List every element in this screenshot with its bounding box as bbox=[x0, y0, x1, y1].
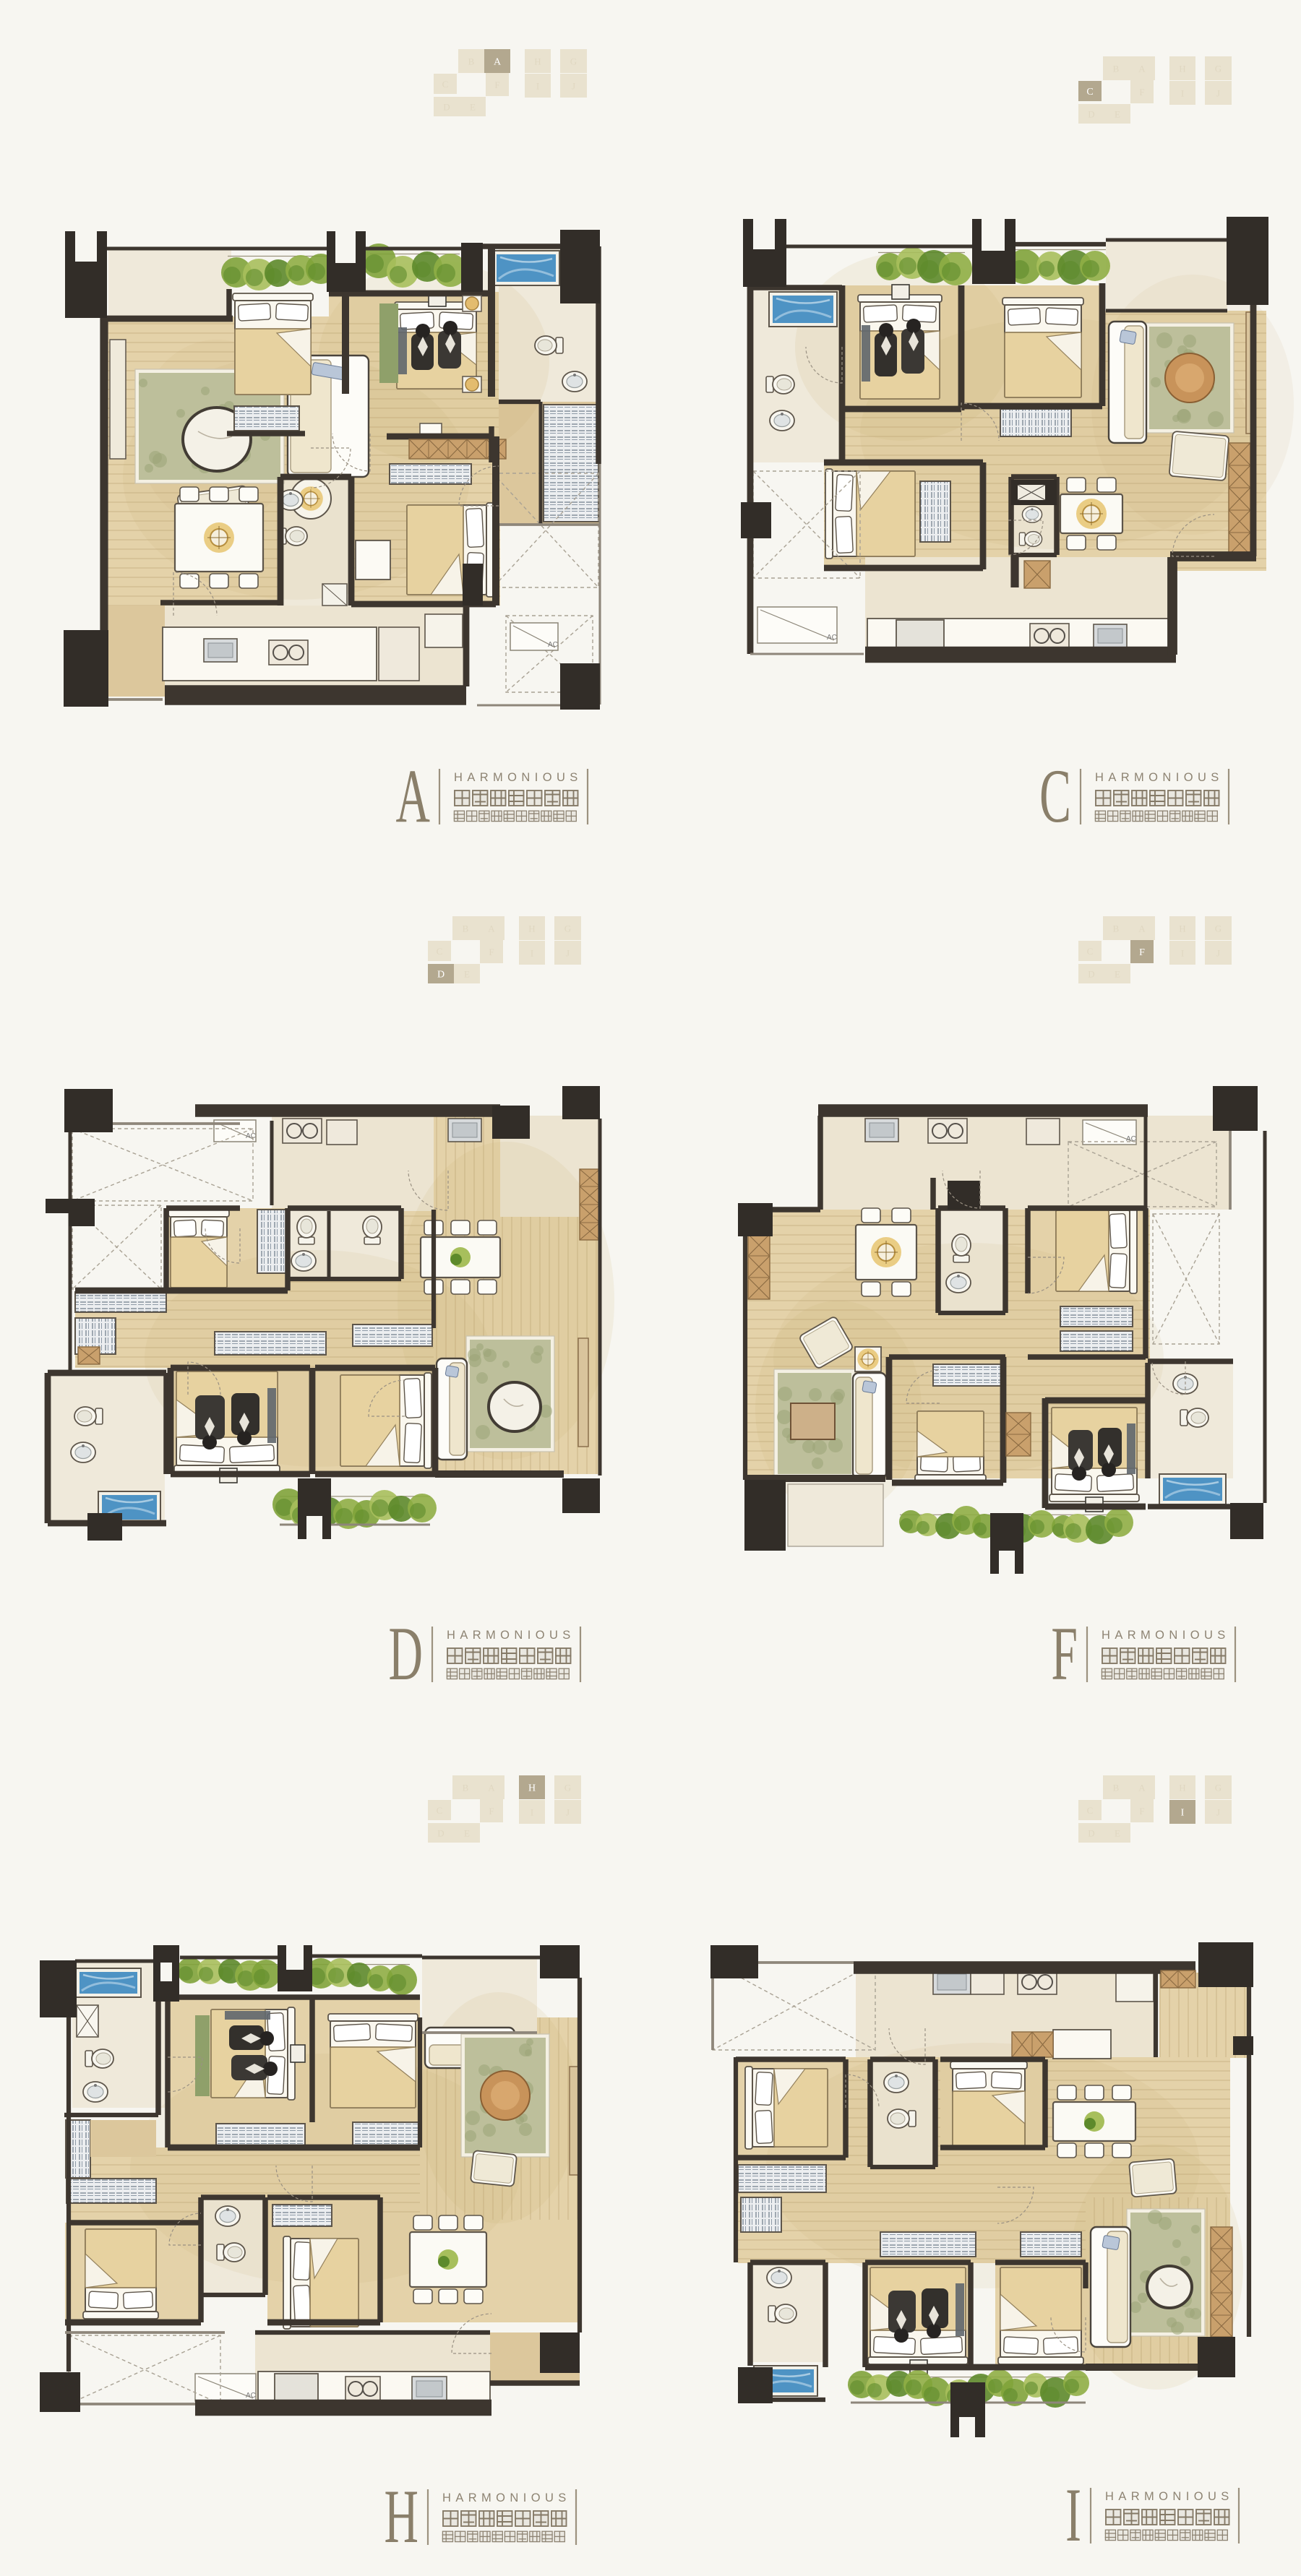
svg-text:J: J bbox=[572, 81, 575, 92]
svg-text:I: I bbox=[1065, 2473, 1081, 2558]
svg-text:B: B bbox=[463, 923, 469, 934]
svg-text:AC: AC bbox=[548, 641, 558, 649]
svg-text:HARMONIOUS: HARMONIOUS bbox=[1095, 771, 1224, 784]
svg-text:HARMONIOUS: HARMONIOUS bbox=[454, 771, 583, 784]
svg-text:H: H bbox=[534, 56, 541, 67]
svg-text:H: H bbox=[528, 1783, 536, 1794]
svg-text:A: A bbox=[488, 923, 495, 934]
svg-text:A: A bbox=[488, 1783, 495, 1793]
svg-text:HARMONIOUS: HARMONIOUS bbox=[1105, 2490, 1234, 2503]
svg-text:C: C bbox=[1039, 754, 1071, 839]
svg-text:AC: AC bbox=[246, 1132, 256, 1140]
svg-text:D: D bbox=[437, 970, 445, 981]
svg-text:H: H bbox=[528, 923, 535, 934]
svg-text:B: B bbox=[1113, 1783, 1120, 1793]
svg-text:E: E bbox=[470, 102, 476, 113]
svg-text:HARMONIOUS: HARMONIOUS bbox=[447, 1629, 575, 1642]
svg-text:C: C bbox=[442, 79, 449, 90]
svg-text:C: C bbox=[437, 946, 443, 957]
svg-text:C: C bbox=[1087, 946, 1094, 957]
svg-text:A: A bbox=[1138, 64, 1146, 74]
svg-text:G: G bbox=[1215, 1783, 1221, 1793]
svg-text:H: H bbox=[1179, 64, 1185, 74]
svg-text:HARMONIOUS: HARMONIOUS bbox=[1102, 1629, 1230, 1642]
svg-text:F: F bbox=[1139, 947, 1145, 958]
svg-text:I: I bbox=[1181, 88, 1184, 99]
svg-text:HARMONIOUS: HARMONIOUS bbox=[442, 2491, 571, 2504]
svg-text:D: D bbox=[1088, 1828, 1094, 1839]
svg-text:J: J bbox=[566, 1807, 570, 1818]
svg-text:G: G bbox=[564, 1783, 571, 1793]
svg-text:AC: AC bbox=[246, 2392, 256, 2400]
svg-text:C: C bbox=[1086, 87, 1093, 98]
svg-text:A: A bbox=[1138, 923, 1146, 934]
svg-text:J: J bbox=[1216, 1807, 1220, 1818]
svg-text:D: D bbox=[443, 102, 450, 113]
svg-text:I: I bbox=[531, 1807, 533, 1818]
svg-text:F: F bbox=[1051, 1611, 1078, 1697]
svg-text:F: F bbox=[494, 79, 499, 90]
svg-text:F: F bbox=[1139, 87, 1144, 98]
svg-text:H: H bbox=[1179, 923, 1185, 934]
svg-text:A: A bbox=[1138, 1783, 1146, 1793]
svg-text:D: D bbox=[1088, 109, 1094, 120]
svg-text:I: I bbox=[536, 81, 539, 92]
svg-text:C: C bbox=[437, 1805, 443, 1816]
svg-text:G: G bbox=[1215, 923, 1221, 934]
svg-text:J: J bbox=[1216, 88, 1220, 99]
svg-text:D: D bbox=[437, 1828, 444, 1839]
svg-text:F: F bbox=[489, 1806, 494, 1817]
svg-text:I: I bbox=[1181, 1808, 1185, 1819]
svg-text:AC: AC bbox=[827, 634, 837, 642]
svg-text:E: E bbox=[1115, 969, 1120, 980]
svg-text:J: J bbox=[566, 948, 570, 959]
svg-text:B: B bbox=[1113, 923, 1120, 934]
svg-text:H: H bbox=[385, 2474, 418, 2559]
svg-text:G: G bbox=[564, 923, 571, 934]
svg-text:A: A bbox=[396, 754, 431, 839]
svg-text:G: G bbox=[570, 56, 577, 67]
svg-text:G: G bbox=[1215, 64, 1221, 74]
svg-text:D: D bbox=[1088, 969, 1094, 980]
svg-text:F: F bbox=[489, 947, 494, 957]
svg-text:E: E bbox=[1115, 109, 1120, 120]
svg-text:B: B bbox=[1113, 64, 1120, 74]
svg-text:I: I bbox=[1181, 948, 1184, 959]
svg-text:H: H bbox=[1179, 1783, 1185, 1793]
svg-text:E: E bbox=[464, 969, 470, 980]
svg-text:E: E bbox=[1115, 1828, 1120, 1839]
svg-text:B: B bbox=[468, 56, 475, 67]
svg-text:A: A bbox=[494, 57, 502, 68]
svg-text:I: I bbox=[531, 948, 533, 959]
svg-text:C: C bbox=[1087, 1805, 1094, 1816]
svg-text:F: F bbox=[1139, 1806, 1144, 1817]
svg-text:E: E bbox=[464, 1828, 470, 1839]
svg-text:D: D bbox=[389, 1611, 423, 1697]
svg-text:J: J bbox=[1216, 948, 1220, 959]
svg-text:B: B bbox=[463, 1783, 469, 1793]
